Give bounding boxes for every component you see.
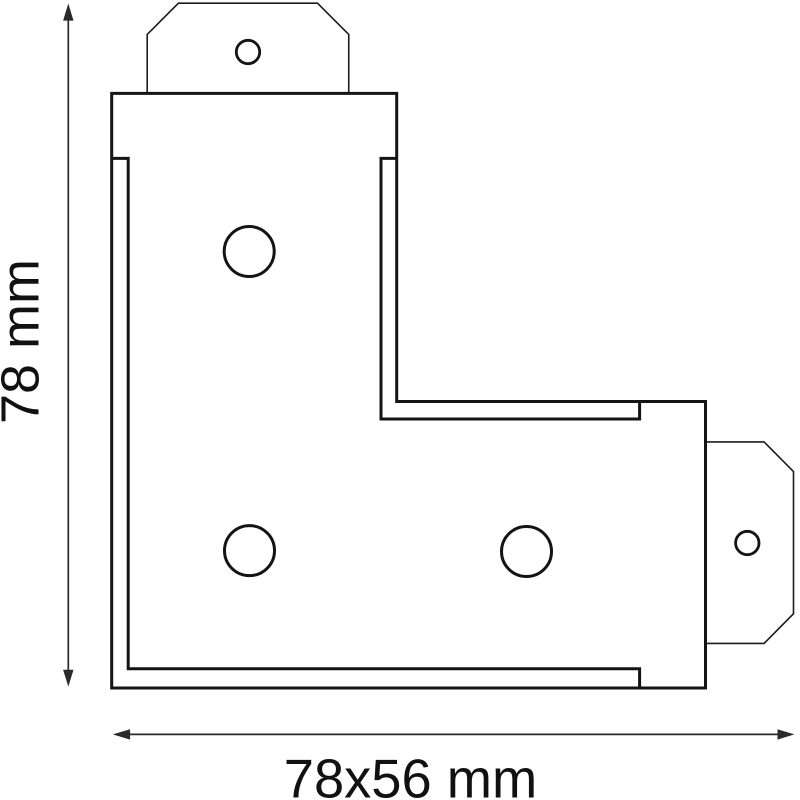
- svg-text:78 mm: 78 mm: [0, 259, 51, 424]
- svg-text:78x56 mm: 78x56 mm: [284, 749, 537, 800]
